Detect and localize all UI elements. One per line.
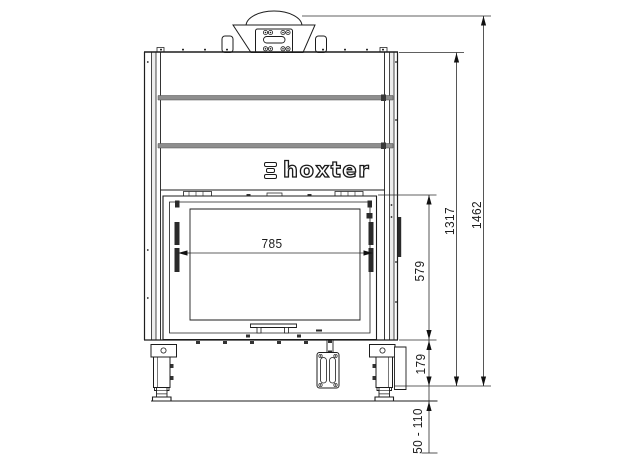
left-leg — [151, 345, 177, 402]
flue-outlet — [222, 11, 327, 53]
convection-bands — [158, 95, 393, 150]
fireplace-technical-drawing: hoxter 785 579 1317 1462 179 50 - 110 — [0, 0, 624, 460]
brand-logo: hoxter — [264, 161, 370, 180]
right-leg — [370, 345, 407, 402]
side-cover-panel — [395, 347, 407, 390]
brand-name: hoxter — [283, 161, 370, 180]
door-glass — [190, 209, 360, 320]
flue-dome — [246, 11, 302, 26]
door-assembly — [161, 190, 385, 340]
flue-ear-right — [316, 36, 327, 53]
flue-mounting-plate — [256, 29, 293, 53]
door-closer-rail — [398, 217, 401, 257]
dim-label-door-opening-height: 579 — [413, 261, 427, 282]
dim-label-door-width: 785 — [262, 237, 283, 251]
drawing-linework — [0, 0, 624, 460]
dim-label-firebox-height: 1317 — [443, 207, 457, 235]
dim-label-base-height: 179 — [414, 354, 428, 375]
dim-label-feet-adjust-range: 50 - 110 — [411, 408, 425, 454]
dim-label-total-height: 1462 — [470, 201, 484, 229]
air-damper-linkage — [317, 340, 339, 388]
hoxter-stacked-discs-icon — [264, 162, 277, 179]
base-assembly — [144, 340, 438, 401]
